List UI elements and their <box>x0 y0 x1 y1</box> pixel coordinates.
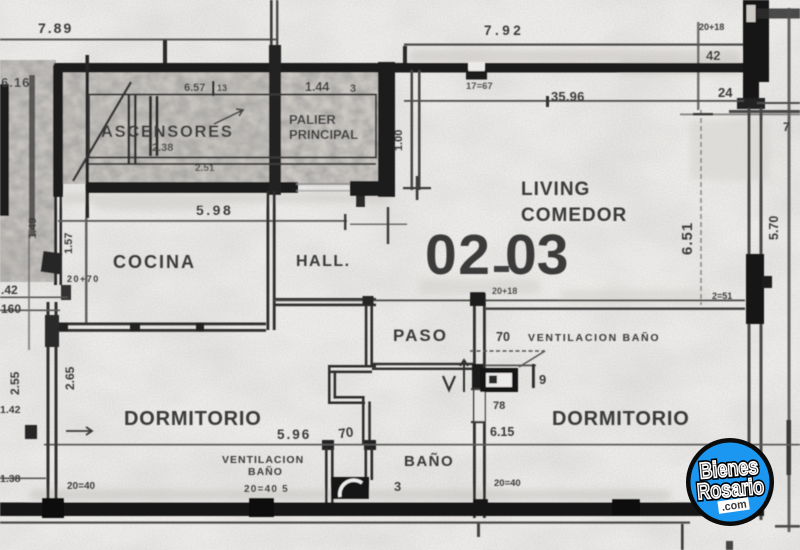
svg-text:42: 42 <box>706 48 720 63</box>
svg-text:6.15: 6.15 <box>490 425 514 439</box>
svg-text:20+18: 20+18 <box>492 286 517 296</box>
svg-text:7.92: 7.92 <box>484 23 524 38</box>
svg-text:7: 7 <box>783 120 790 134</box>
svg-text:6.57: 6.57 <box>184 82 205 94</box>
svg-text:PASO: PASO <box>393 326 448 345</box>
svg-text:20=40 5: 20=40 5 <box>244 484 289 495</box>
svg-text:1.00: 1.00 <box>393 130 405 151</box>
svg-text:PRINCIPAL: PRINCIPAL <box>289 127 358 142</box>
svg-text:5.70: 5.70 <box>767 216 781 240</box>
svg-text:78: 78 <box>493 400 505 412</box>
svg-text:70: 70 <box>337 424 354 441</box>
svg-text:5.98: 5.98 <box>196 202 233 218</box>
svg-text:03: 03 <box>505 223 568 287</box>
svg-text:ASCENSORES: ASCENSORES <box>101 123 234 141</box>
svg-text:1.42: 1.42 <box>0 404 21 416</box>
svg-text:BAÑO: BAÑO <box>404 452 454 470</box>
svg-text:160: 160 <box>1 302 21 316</box>
svg-text:9: 9 <box>539 372 546 387</box>
svg-text:20+70: 20+70 <box>67 274 100 284</box>
svg-text:17=67: 17=67 <box>466 81 493 92</box>
svg-text:1.49: 1.49 <box>27 218 39 239</box>
svg-text:7.89: 7.89 <box>38 20 73 36</box>
svg-text:20+18: 20+18 <box>699 22 724 32</box>
svg-text:24: 24 <box>718 85 733 100</box>
svg-text:13: 13 <box>217 83 227 93</box>
svg-text:PALIER: PALIER <box>289 112 336 127</box>
svg-text:LIVING: LIVING <box>521 179 590 200</box>
svg-text:VENTILACION BAÑO: VENTILACION BAÑO <box>528 331 660 344</box>
svg-text:20=40: 20=40 <box>67 481 96 492</box>
svg-text:3: 3 <box>350 83 356 95</box>
svg-text:DORMITORIO: DORMITORIO <box>552 408 690 430</box>
svg-text:.42: .42 <box>1 283 18 297</box>
svg-text:BAÑO: BAÑO <box>248 465 283 478</box>
svg-text:6.51: 6.51 <box>679 222 696 255</box>
svg-text:20=40: 20=40 <box>494 478 521 489</box>
svg-text:3: 3 <box>394 479 401 494</box>
svg-text:HALL.: HALL. <box>296 253 351 270</box>
svg-text:1.38: 1.38 <box>0 473 21 485</box>
svg-text:6.16: 6.16 <box>1 75 30 90</box>
svg-text:1.44: 1.44 <box>305 80 329 94</box>
svg-text:COCINA: COCINA <box>113 252 196 272</box>
svg-text:2.55: 2.55 <box>8 371 22 395</box>
svg-text:2.51: 2.51 <box>195 163 215 174</box>
svg-text:DORMITORIO: DORMITORIO <box>124 408 262 430</box>
svg-text:VENTILACION: VENTILACION <box>222 454 304 466</box>
svg-text:1.57: 1.57 <box>63 233 75 254</box>
svg-text:70: 70 <box>496 330 510 344</box>
svg-text:02: 02 <box>425 223 491 287</box>
svg-text:2=51: 2=51 <box>712 291 732 301</box>
svg-text:5.96: 5.96 <box>277 427 311 442</box>
svg-text:2.65: 2.65 <box>63 366 77 390</box>
svg-text:2.38: 2.38 <box>152 142 173 154</box>
svg-text:35.96: 35.96 <box>551 89 585 104</box>
